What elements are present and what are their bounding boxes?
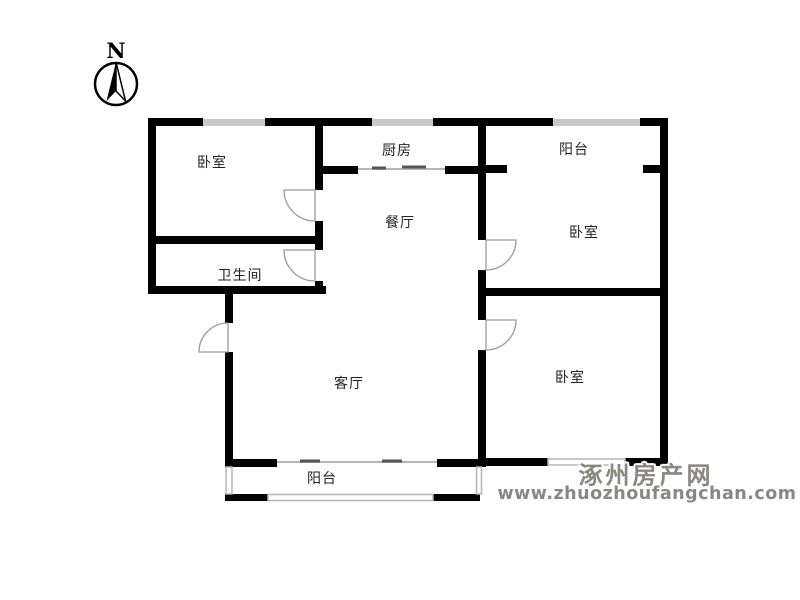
window-bar <box>372 119 433 126</box>
floor-plan-image: N <box>0 0 800 600</box>
room-label-bedroom-top-left: 卧室 <box>197 152 227 172</box>
room-label-balcony-top: 阳台 <box>559 139 589 159</box>
watermark-site-url: www.zhuozhoufangchan.com <box>497 484 796 504</box>
window-band <box>477 467 482 494</box>
exterior-walls <box>148 118 668 501</box>
room-label-dining-room: 餐厅 <box>385 212 415 232</box>
door-arc-bedroom-top-left <box>284 190 315 221</box>
compass-needle-dark-half <box>107 62 117 101</box>
window-band <box>268 495 433 501</box>
room-label-kitchen: 厨房 <box>382 140 412 160</box>
door-arc-bathroom <box>284 250 315 281</box>
room-label-living-room: 客厅 <box>334 373 364 393</box>
room-label-bedroom-right-middle: 卧室 <box>569 222 599 242</box>
compass-north-letter: N <box>106 38 125 63</box>
window-bar <box>553 119 640 126</box>
floor-plan-drawing: N <box>0 0 800 600</box>
room-label-bedroom-right-bottom: 卧室 <box>555 367 585 387</box>
door-arc-entry <box>199 323 228 352</box>
window-bar <box>203 119 265 126</box>
window-band <box>226 467 232 494</box>
room-label-bathroom: 卫生间 <box>218 265 263 285</box>
room-label-balcony-bottom: 阳台 <box>307 468 337 488</box>
compass-needle-light-half <box>116 62 126 101</box>
door-arc-bedroom-right-middle <box>486 240 516 270</box>
north-compass-icon: N <box>95 38 137 105</box>
door-arc-bedroom-right-bottom <box>486 320 516 350</box>
windows <box>203 119 640 501</box>
